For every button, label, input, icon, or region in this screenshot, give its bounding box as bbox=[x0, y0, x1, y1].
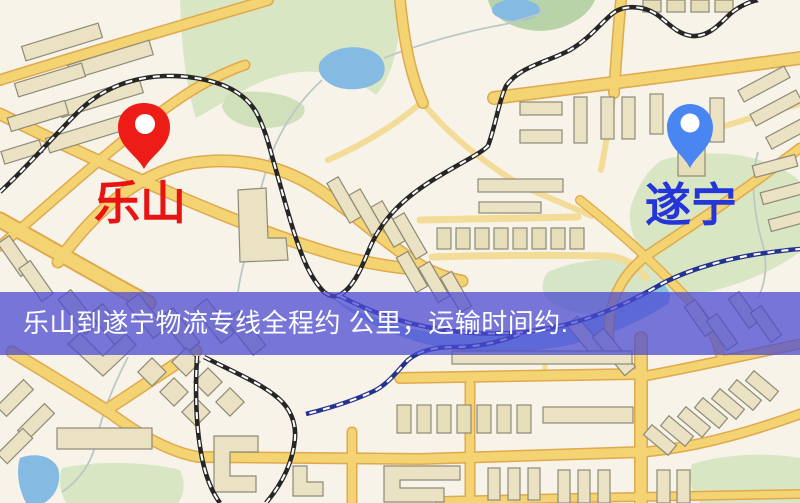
suining-label: 遂宁 bbox=[645, 180, 737, 231]
map-screenshot: 乐山到遂宁物流专线全程约 公里，运输时间约. 乐山 遂宁 bbox=[0, 0, 800, 503]
route-info-banner: 乐山到遂宁物流专线全程约 公里，运输时间约. bbox=[0, 292, 800, 355]
map-canvas[interactable]: 乐山到遂宁物流专线全程约 公里，运输时间约. 乐山 遂宁 bbox=[0, 0, 800, 503]
banner-text: 乐山到遂宁物流专线全程约 公里，运输时间约. bbox=[23, 308, 568, 338]
leshan-label: 乐山 bbox=[94, 178, 186, 229]
map-pin-hole bbox=[681, 114, 700, 133]
map-pin-hole bbox=[135, 114, 155, 134]
